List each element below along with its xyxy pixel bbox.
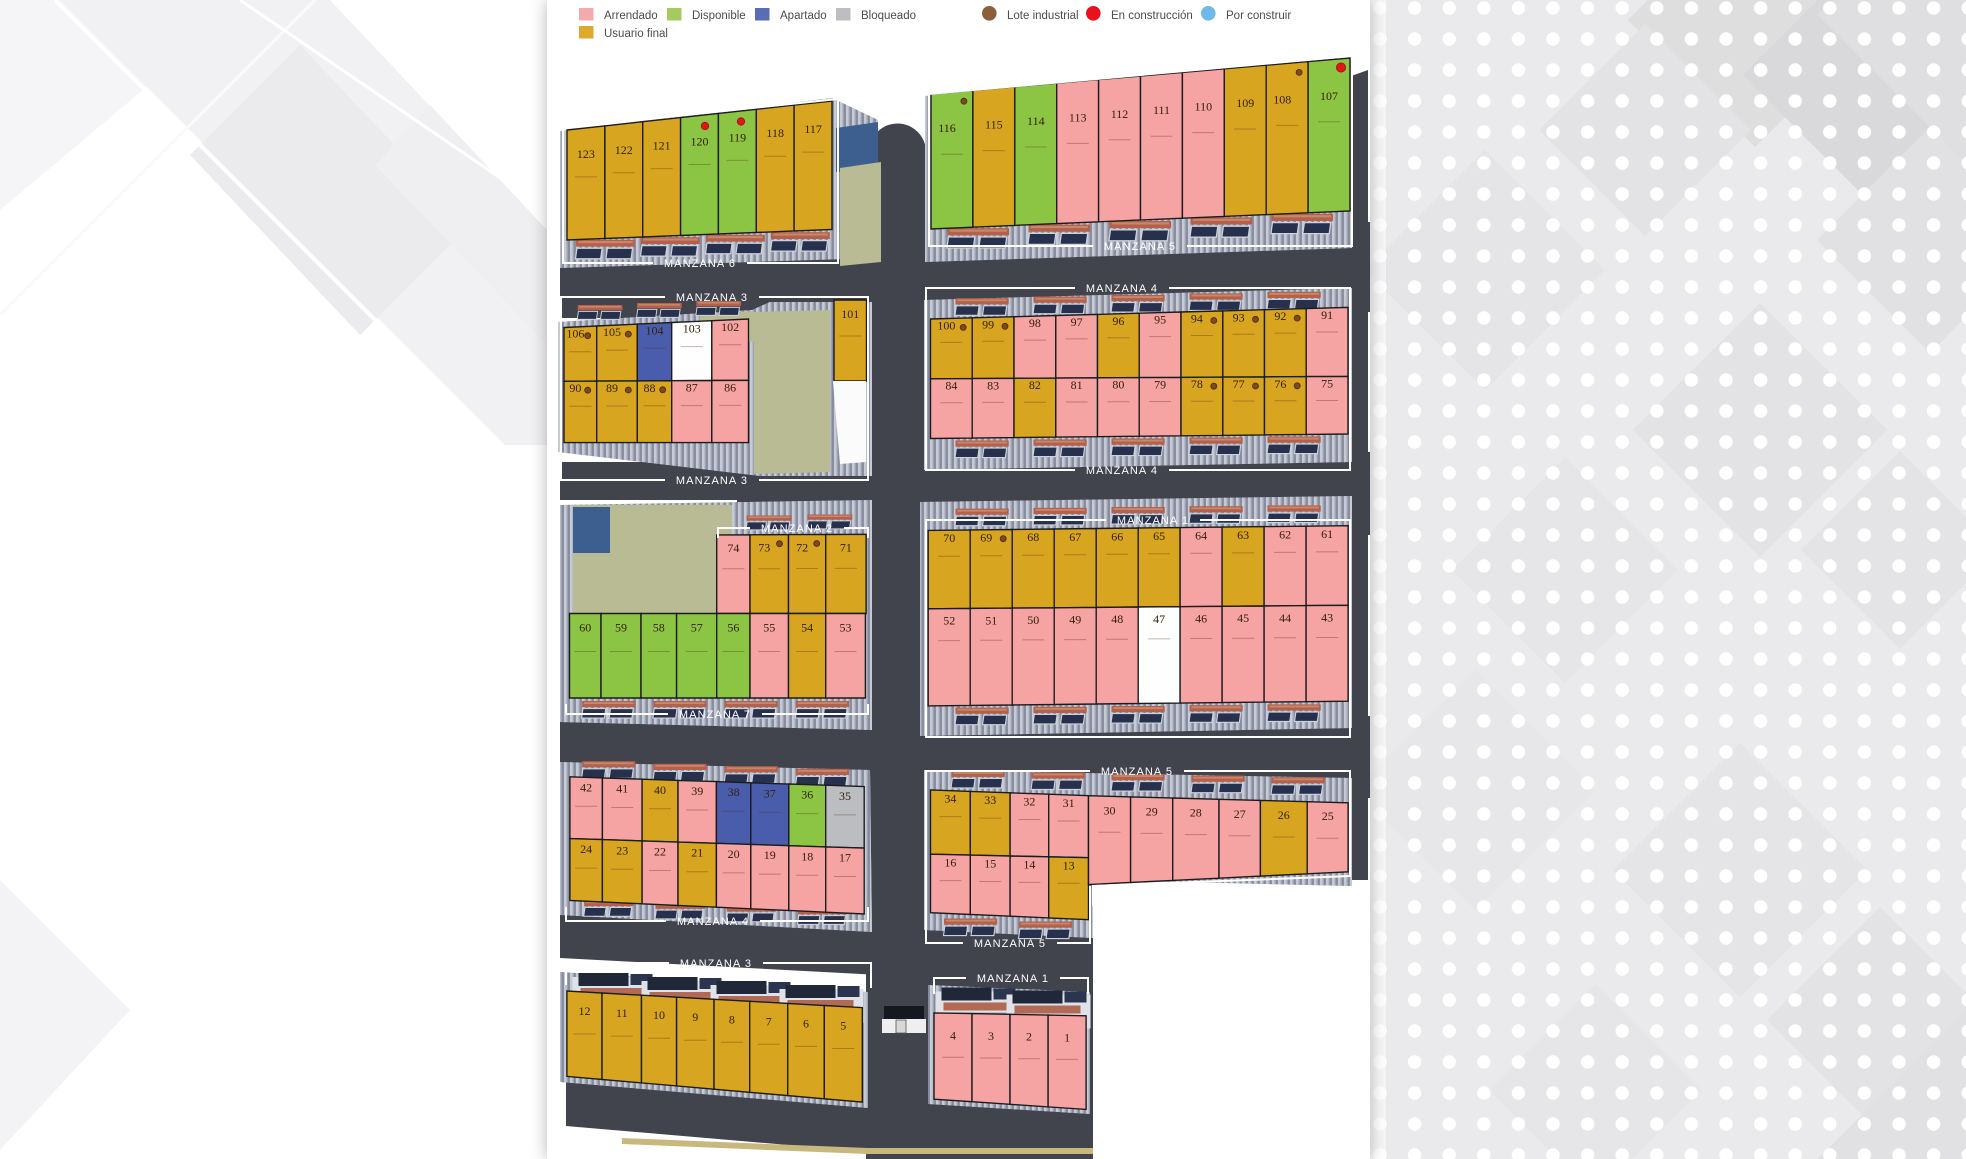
svg-text:MANZANA 1: MANZANA 1 <box>977 973 1049 985</box>
svg-text:98: 98 <box>1029 316 1041 330</box>
svg-text:104: 104 <box>646 323 664 337</box>
svg-text:103: 103 <box>683 322 701 336</box>
svg-text:13: 13 <box>1063 858 1075 872</box>
svg-text:121: 121 <box>653 139 671 153</box>
svg-text:6: 6 <box>803 1016 809 1030</box>
svg-text:90: 90 <box>569 381 581 395</box>
svg-text:15: 15 <box>984 857 996 871</box>
svg-text:MANZANA 5: MANZANA 5 <box>1101 766 1173 778</box>
svg-text:44: 44 <box>1279 611 1291 625</box>
svg-text:58: 58 <box>653 621 665 635</box>
svg-text:37: 37 <box>764 786 776 800</box>
svg-text:MANZANA 2: MANZANA 2 <box>761 523 833 535</box>
svg-text:42: 42 <box>580 780 592 794</box>
svg-text:26: 26 <box>1278 808 1290 822</box>
svg-text:MANZANA 6: MANZANA 6 <box>664 258 736 270</box>
svg-text:68: 68 <box>1027 530 1039 544</box>
svg-text:14: 14 <box>1023 857 1035 871</box>
svg-text:17: 17 <box>839 851 851 865</box>
svg-text:41: 41 <box>616 782 628 796</box>
svg-text:54: 54 <box>801 621 813 635</box>
svg-text:70: 70 <box>943 531 955 545</box>
svg-text:100: 100 <box>937 318 955 332</box>
svg-text:21: 21 <box>691 846 703 860</box>
svg-text:Lote industrial: Lote industrial <box>1007 10 1079 22</box>
svg-text:49: 49 <box>1069 613 1081 627</box>
svg-text:MANZANA 7: MANZANA 7 <box>679 709 751 721</box>
svg-text:Apartado: Apartado <box>780 10 827 22</box>
svg-text:102: 102 <box>721 320 739 334</box>
svg-text:79: 79 <box>1154 378 1166 392</box>
svg-text:50: 50 <box>1027 613 1039 627</box>
svg-text:82: 82 <box>1029 378 1041 392</box>
svg-text:56: 56 <box>727 621 739 635</box>
svg-text:7: 7 <box>766 1014 772 1028</box>
svg-text:57: 57 <box>691 621 703 635</box>
svg-text:MANZANA 1: MANZANA 1 <box>1117 515 1189 527</box>
svg-text:75: 75 <box>1321 377 1333 391</box>
svg-text:2: 2 <box>1026 1030 1032 1044</box>
svg-text:29: 29 <box>1146 804 1158 818</box>
svg-text:20: 20 <box>728 847 740 861</box>
svg-text:35: 35 <box>839 789 851 803</box>
svg-text:61: 61 <box>1321 527 1333 541</box>
svg-text:39: 39 <box>691 784 703 798</box>
svg-text:86: 86 <box>724 380 736 394</box>
svg-text:18: 18 <box>801 849 813 863</box>
svg-text:63: 63 <box>1237 528 1249 542</box>
svg-text:8: 8 <box>729 1012 735 1026</box>
svg-text:33: 33 <box>984 793 996 807</box>
svg-text:45: 45 <box>1237 611 1249 625</box>
svg-text:MANZANA 5: MANZANA 5 <box>1104 241 1176 253</box>
svg-text:110: 110 <box>1195 100 1213 114</box>
svg-text:113: 113 <box>1069 110 1087 124</box>
svg-text:76: 76 <box>1274 377 1286 391</box>
svg-text:10: 10 <box>653 1008 665 1022</box>
svg-text:66: 66 <box>1111 529 1123 543</box>
svg-text:3: 3 <box>988 1029 994 1043</box>
svg-text:123: 123 <box>577 147 595 161</box>
svg-text:1: 1 <box>1064 1030 1070 1044</box>
svg-text:69: 69 <box>980 531 992 545</box>
svg-text:25: 25 <box>1322 809 1334 823</box>
svg-text:36: 36 <box>801 788 813 802</box>
svg-text:22: 22 <box>654 845 666 859</box>
svg-text:MANZANA 3: MANZANA 3 <box>676 292 748 304</box>
svg-text:89: 89 <box>606 381 618 395</box>
svg-text:4: 4 <box>950 1028 956 1042</box>
svg-text:101: 101 <box>841 307 859 321</box>
svg-text:81: 81 <box>1071 378 1083 392</box>
svg-text:5: 5 <box>840 1019 846 1033</box>
svg-text:93: 93 <box>1233 310 1245 324</box>
svg-text:67: 67 <box>1069 530 1081 544</box>
svg-text:77: 77 <box>1233 377 1245 391</box>
svg-text:16: 16 <box>944 856 956 870</box>
svg-text:111: 111 <box>1153 103 1170 117</box>
svg-text:MANZANA 4: MANZANA 4 <box>677 916 749 928</box>
svg-text:55: 55 <box>763 621 775 635</box>
svg-text:106: 106 <box>566 327 584 341</box>
svg-text:114: 114 <box>1027 114 1045 128</box>
svg-text:116: 116 <box>938 121 956 135</box>
svg-text:117: 117 <box>804 122 822 136</box>
svg-text:12: 12 <box>579 1004 591 1018</box>
svg-text:53: 53 <box>840 621 852 635</box>
svg-text:MANZANA 4: MANZANA 4 <box>1086 465 1158 477</box>
svg-text:47: 47 <box>1153 612 1165 626</box>
svg-text:31: 31 <box>1063 796 1075 810</box>
svg-text:43: 43 <box>1321 611 1333 625</box>
svg-text:Bloqueado: Bloqueado <box>861 10 916 22</box>
svg-text:97: 97 <box>1071 315 1083 329</box>
svg-text:27: 27 <box>1234 807 1246 821</box>
svg-text:60: 60 <box>579 621 591 635</box>
svg-text:64: 64 <box>1195 528 1207 542</box>
svg-text:112: 112 <box>1111 107 1129 121</box>
svg-text:107: 107 <box>1320 89 1338 103</box>
svg-text:109: 109 <box>1236 96 1254 110</box>
svg-text:71: 71 <box>840 540 852 554</box>
svg-text:87: 87 <box>686 381 698 395</box>
svg-text:28: 28 <box>1190 806 1202 820</box>
svg-text:105: 105 <box>603 325 621 339</box>
svg-text:95: 95 <box>1154 313 1166 327</box>
svg-text:118: 118 <box>766 126 784 140</box>
svg-text:48: 48 <box>1111 612 1123 626</box>
svg-text:38: 38 <box>728 785 740 799</box>
svg-text:51: 51 <box>985 613 997 627</box>
svg-text:88: 88 <box>644 381 656 395</box>
svg-text:84: 84 <box>945 379 957 393</box>
svg-text:Usuario final: Usuario final <box>604 28 668 40</box>
svg-text:96: 96 <box>1112 314 1124 328</box>
svg-text:MANZANA 3: MANZANA 3 <box>676 475 748 487</box>
svg-text:115: 115 <box>985 118 1003 132</box>
svg-text:119: 119 <box>729 130 747 144</box>
svg-text:59: 59 <box>615 621 627 635</box>
svg-text:83: 83 <box>987 378 999 392</box>
svg-text:34: 34 <box>944 792 956 806</box>
svg-text:23: 23 <box>616 843 628 857</box>
svg-text:72: 72 <box>796 541 808 555</box>
svg-text:46: 46 <box>1195 612 1207 626</box>
svg-text:94: 94 <box>1191 312 1203 326</box>
svg-text:11: 11 <box>616 1006 628 1020</box>
svg-text:108: 108 <box>1273 92 1291 106</box>
svg-text:91: 91 <box>1321 308 1333 322</box>
svg-text:24: 24 <box>580 842 592 856</box>
svg-text:99: 99 <box>982 317 994 331</box>
svg-text:9: 9 <box>692 1010 698 1024</box>
svg-text:40: 40 <box>654 783 666 797</box>
svg-text:65: 65 <box>1153 529 1165 543</box>
svg-text:Por construir: Por construir <box>1226 10 1291 22</box>
svg-text:78: 78 <box>1191 377 1203 391</box>
svg-text:30: 30 <box>1104 803 1116 817</box>
svg-text:122: 122 <box>615 143 633 157</box>
svg-text:74: 74 <box>727 541 739 555</box>
svg-text:MANZANA 3: MANZANA 3 <box>680 958 752 970</box>
svg-text:62: 62 <box>1279 527 1291 541</box>
svg-text:19: 19 <box>764 848 776 862</box>
svg-text:52: 52 <box>943 614 955 628</box>
svg-text:MANZANA 5: MANZANA 5 <box>974 938 1046 950</box>
svg-text:32: 32 <box>1023 795 1035 809</box>
svg-text:80: 80 <box>1112 378 1124 392</box>
svg-text:Arrendado: Arrendado <box>604 10 658 22</box>
svg-text:92: 92 <box>1274 309 1286 323</box>
svg-text:73: 73 <box>758 541 770 555</box>
svg-text:Disponible: Disponible <box>692 10 746 22</box>
svg-text:120: 120 <box>691 135 709 149</box>
svg-text:MANZANA 4: MANZANA 4 <box>1086 283 1158 295</box>
svg-text:En construcción: En construcción <box>1111 10 1193 22</box>
